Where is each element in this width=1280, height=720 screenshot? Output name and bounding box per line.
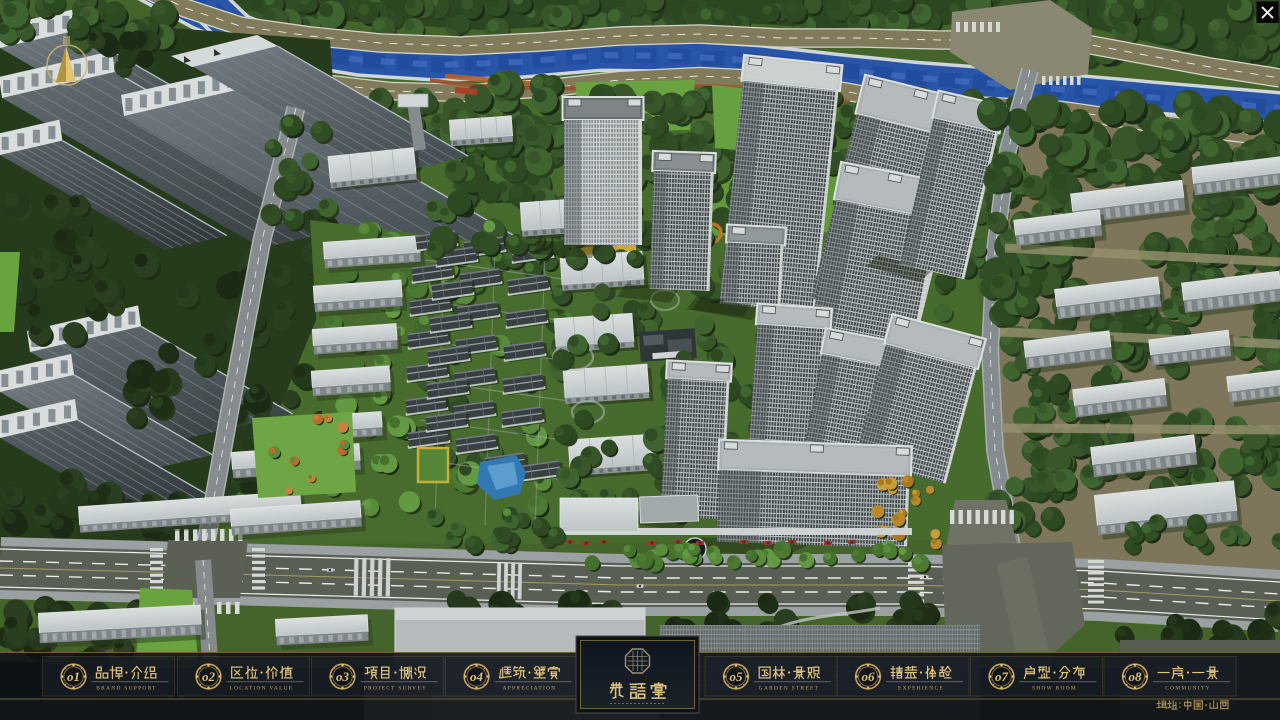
svg-text:BRAND SUPPORT: BRAND SUPPORT <box>96 686 156 692</box>
svg-text:o6: o6 <box>862 669 876 684</box>
svg-text:PROJECT SURVEY: PROJECT SURVEY <box>364 686 427 692</box>
svg-text:o5: o5 <box>730 669 744 684</box>
svg-text:SHOW ROOM: SHOW ROOM <box>1032 686 1077 692</box>
svg-text:APPRECIATION: APPRECIATION <box>503 686 557 692</box>
svg-text:o4: o4 <box>470 669 484 684</box>
svg-text:o8: o8 <box>1129 669 1143 684</box>
svg-text:EXPERIENCE: EXPERIENCE <box>898 686 944 692</box>
svg-text:o3: o3 <box>336 669 350 684</box>
svg-text:o7: o7 <box>995 669 1009 684</box>
svg-text:LOCATION VALUE: LOCATION VALUE <box>230 686 294 692</box>
svg-text:o2: o2 <box>202 669 216 684</box>
svg-text:GARDEN STREET: GARDEN STREET <box>759 686 819 692</box>
svg-text:COMMUNITY: COMMUNITY <box>1165 686 1211 692</box>
svg-text:o1: o1 <box>67 669 80 684</box>
